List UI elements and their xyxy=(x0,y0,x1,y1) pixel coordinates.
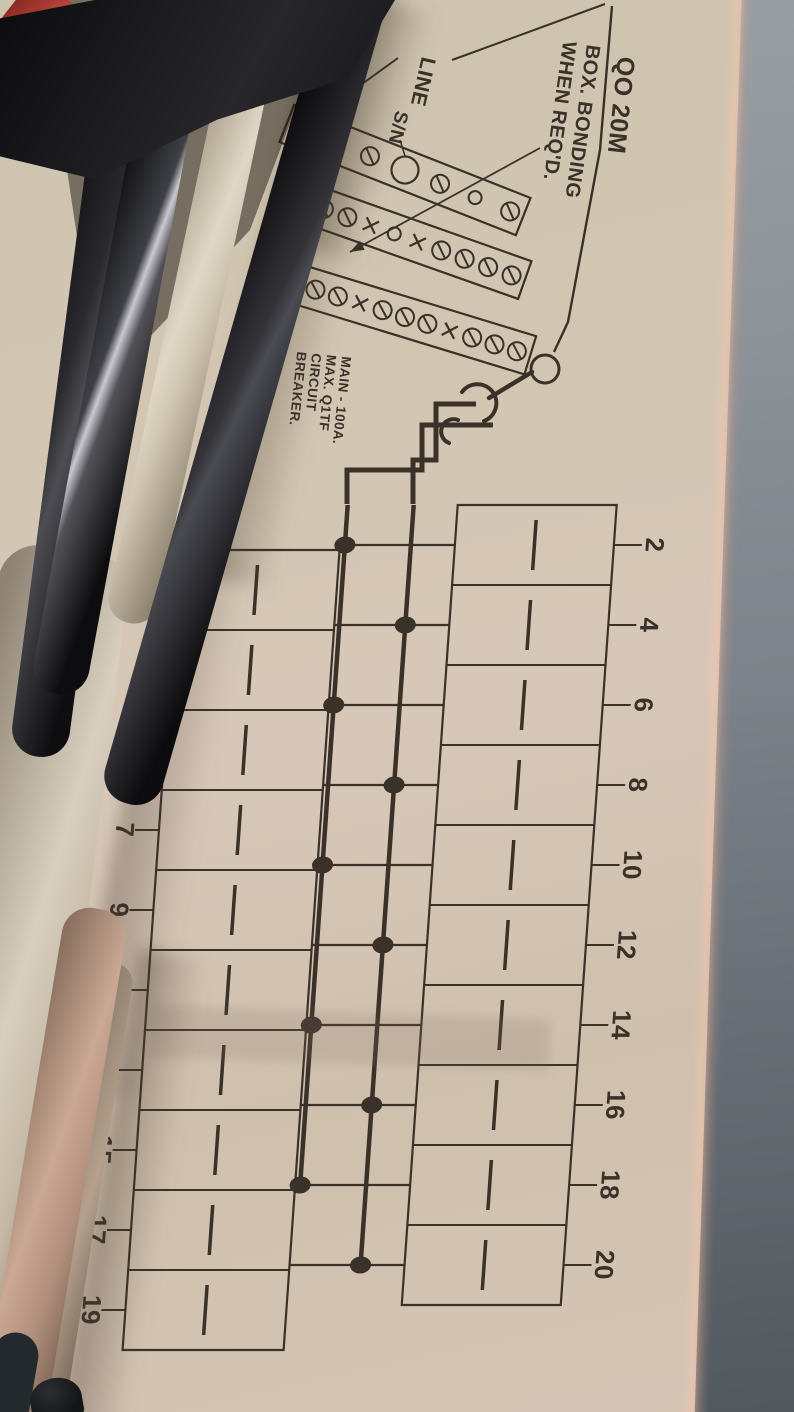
circuit-number-even: 20 xyxy=(589,1250,621,1280)
bus-junction-dot xyxy=(349,1257,371,1274)
screw-slot-icon xyxy=(434,243,449,258)
bus-junction-dot xyxy=(372,937,394,954)
main-lug-terminal xyxy=(531,355,559,383)
breaker-dash xyxy=(248,645,251,695)
bus-junction-dot xyxy=(394,617,416,634)
bus-junction-dot xyxy=(334,537,356,554)
bus-junction-dot xyxy=(383,777,405,794)
screw-slot-icon xyxy=(432,176,448,192)
bus-bar-b xyxy=(300,505,348,1185)
bus-junction-dot xyxy=(289,1177,311,1194)
circuit-number-even: 6 xyxy=(628,698,659,713)
bus-junction-dot xyxy=(323,697,345,714)
bonding-x-icon xyxy=(442,323,458,339)
terminal-hole-icon xyxy=(386,226,403,243)
bus-feed-b xyxy=(347,425,493,504)
screw-slot-icon xyxy=(487,337,502,352)
bonding-note: BOX. BONDING WHEN REQ'D. xyxy=(537,40,604,200)
screw-slot-icon xyxy=(480,259,495,274)
breaker-dash xyxy=(533,520,536,570)
circuit-number-even: 18 xyxy=(594,1170,626,1200)
breaker-dash xyxy=(209,1205,212,1255)
circuit-number-even: 4 xyxy=(634,618,665,633)
circuit-number-even: 14 xyxy=(605,1010,637,1040)
breaker-dash xyxy=(232,885,235,935)
screw-slot-icon xyxy=(504,268,519,283)
screw-slot-icon xyxy=(375,303,390,318)
breaker-dash xyxy=(516,760,519,810)
breaker-dash xyxy=(482,1240,485,1290)
screw-slot-icon xyxy=(398,310,413,325)
breaker-dash xyxy=(510,840,513,890)
bonding-x-icon xyxy=(352,295,368,311)
screw-slot-icon xyxy=(420,316,435,331)
breaker-dash xyxy=(243,725,246,775)
circuit-number-even: 10 xyxy=(616,850,648,880)
panel-photo: QO 20M BOX. BONDING WHEN REQ'D. LINE S/N… xyxy=(0,0,794,1412)
breaker-dash xyxy=(204,1285,207,1335)
breaker-dash xyxy=(505,920,508,970)
circuit-number-even: 12 xyxy=(611,930,643,960)
terminal-hole-icon xyxy=(467,189,484,206)
bus-junction-dot xyxy=(361,1097,383,1114)
breaker-dash xyxy=(488,1160,491,1210)
screw-slot-icon xyxy=(465,330,480,345)
breaker-dash xyxy=(215,1125,218,1175)
breaker-dash xyxy=(527,600,530,650)
circuit-number-even: 8 xyxy=(623,778,654,793)
breaker-dash xyxy=(521,680,524,730)
circuit-number-even: 2 xyxy=(639,538,670,553)
screw-slot-icon xyxy=(457,251,472,266)
bonding-x-icon xyxy=(409,234,426,251)
circuit-number-even: 16 xyxy=(600,1090,632,1120)
screw-slot-icon xyxy=(502,204,518,220)
breaker-dash xyxy=(237,805,240,855)
screw-slot-icon xyxy=(509,344,524,359)
breaker-dash xyxy=(493,1080,496,1130)
bus-junction-dot xyxy=(311,857,333,874)
